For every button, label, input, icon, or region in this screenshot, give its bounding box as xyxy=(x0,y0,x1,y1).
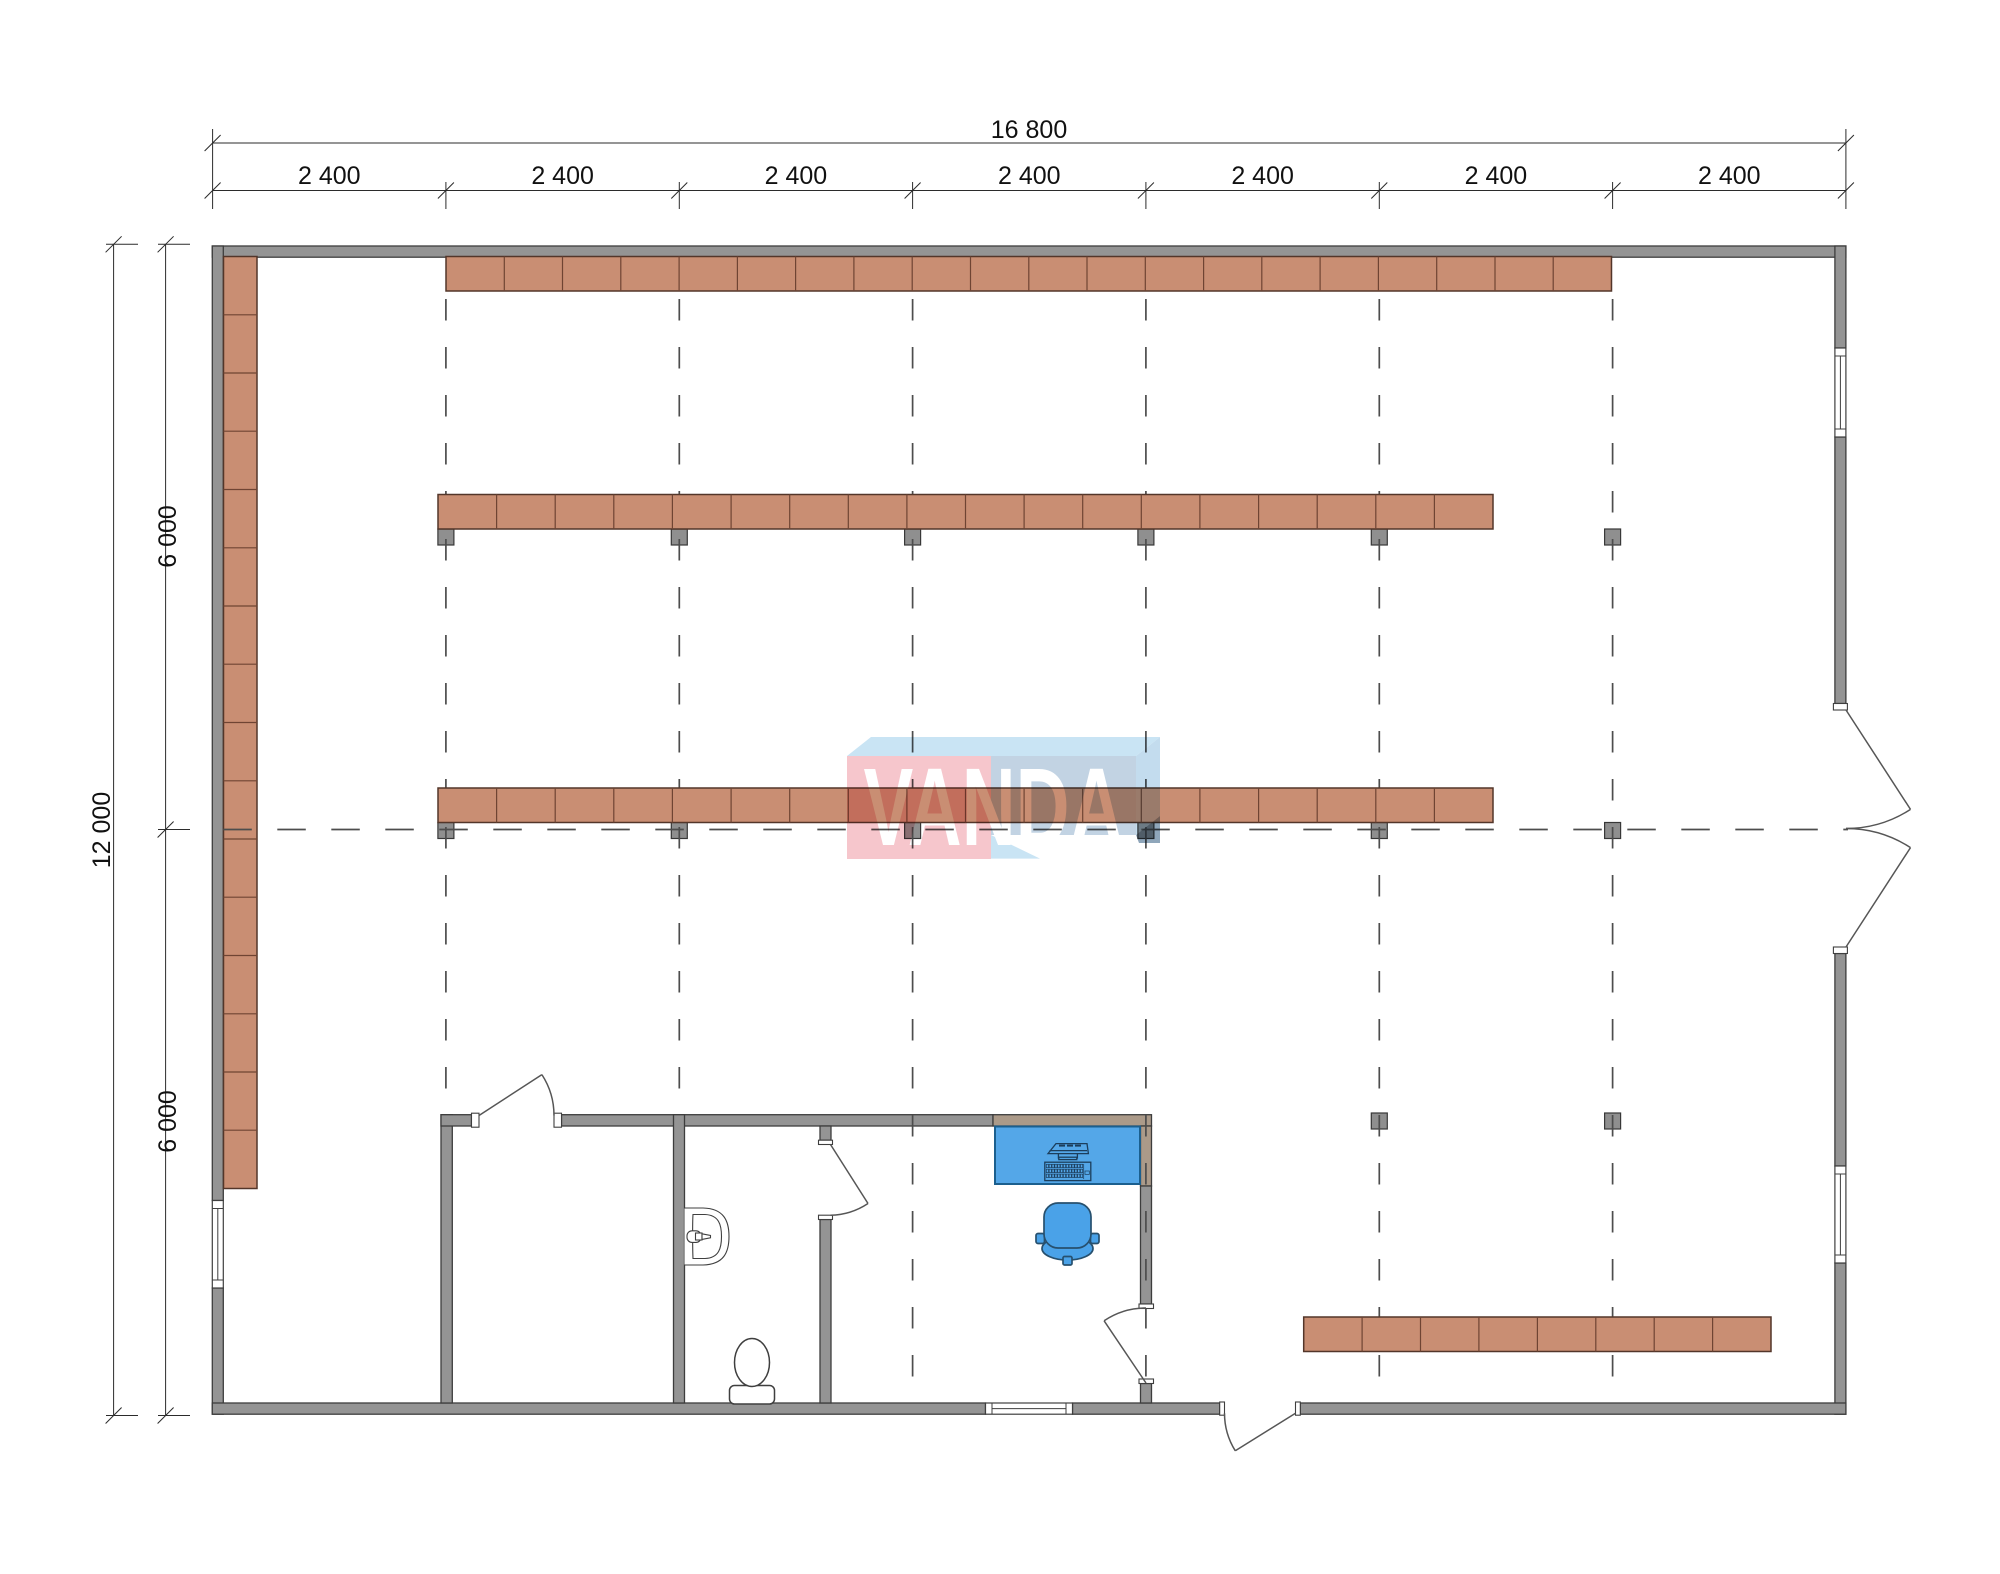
svg-text:2 400: 2 400 xyxy=(298,162,361,190)
svg-text:2 400: 2 400 xyxy=(1231,162,1294,190)
svg-text:12 000: 12 000 xyxy=(88,792,116,868)
svg-text:2 400: 2 400 xyxy=(531,162,594,190)
svg-text:2 400: 2 400 xyxy=(1465,162,1528,190)
svg-text:6 000: 6 000 xyxy=(154,505,182,568)
svg-text:2 400: 2 400 xyxy=(998,162,1061,190)
svg-text:2 400: 2 400 xyxy=(1698,162,1761,190)
svg-text:2 400: 2 400 xyxy=(765,162,828,190)
svg-text:16 800: 16 800 xyxy=(991,116,1067,144)
svg-text:6 000: 6 000 xyxy=(154,1090,182,1153)
